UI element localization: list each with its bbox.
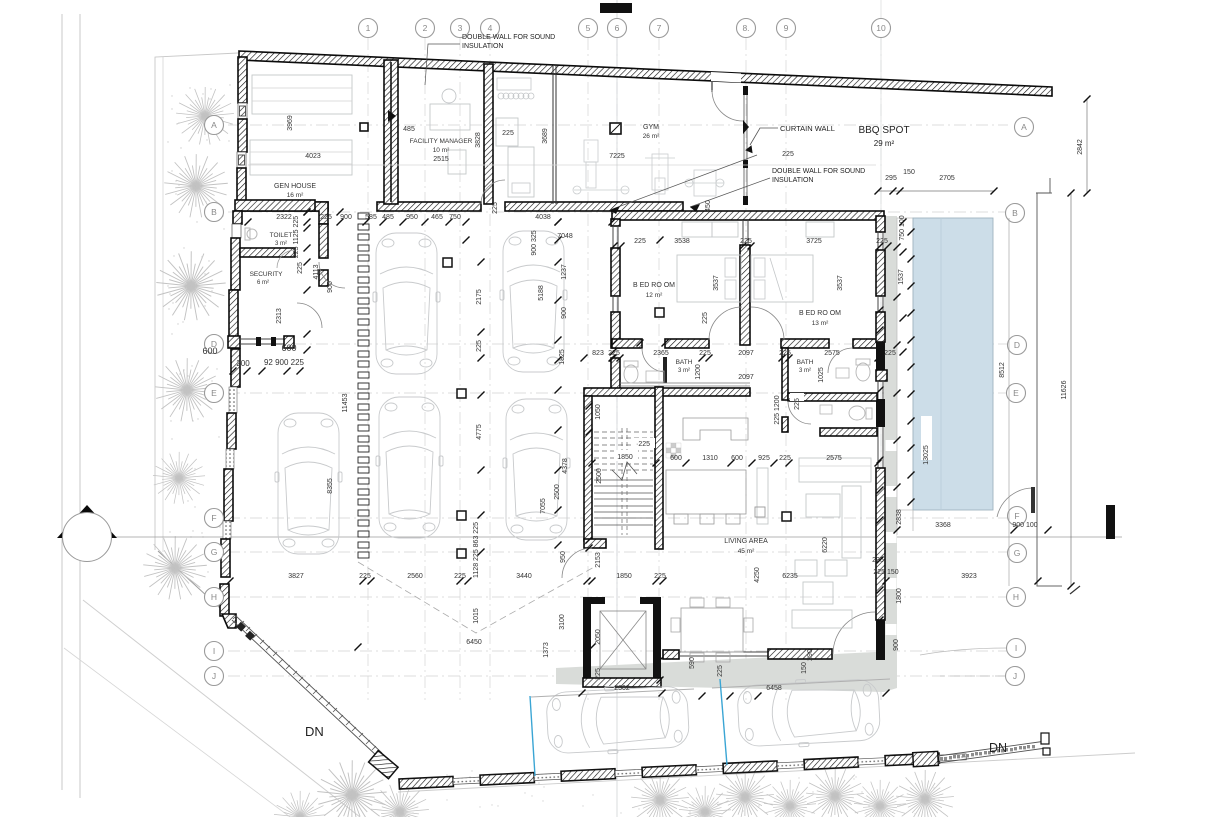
svg-text:3 m²: 3 m²: [275, 241, 287, 247]
svg-text:F: F: [1014, 511, 1019, 521]
svg-text:7225: 7225: [609, 153, 625, 160]
svg-text:3537: 3537: [837, 275, 844, 291]
svg-text:900: 900: [561, 307, 568, 319]
svg-text:92 900 225: 92 900 225: [264, 358, 305, 367]
svg-text:225: 225: [884, 350, 896, 357]
svg-text:225: 225: [320, 214, 332, 221]
svg-text:8355: 8355: [327, 478, 334, 494]
svg-text:D: D: [1014, 340, 1020, 350]
svg-text:3828: 3828: [475, 132, 482, 148]
svg-text:590: 590: [689, 657, 696, 669]
svg-text:4023: 4023: [305, 153, 321, 160]
svg-text:225: 225: [782, 151, 794, 158]
svg-text:TOILET: TOILET: [270, 232, 293, 239]
svg-text:7055: 7055: [540, 498, 547, 514]
svg-text:2175: 2175: [476, 289, 483, 305]
svg-text:11626: 11626: [1061, 380, 1068, 399]
svg-text:225: 225: [634, 238, 646, 245]
svg-text:4: 4: [488, 23, 493, 33]
svg-text:J: J: [212, 671, 216, 681]
svg-text:GEN HOUSE: GEN HOUSE: [274, 183, 316, 190]
svg-text:2500: 2500: [554, 484, 561, 500]
svg-text:SECURITY: SECURITY: [250, 271, 284, 278]
svg-text:900: 900: [893, 639, 900, 651]
svg-text:INSULATION: INSULATION: [462, 43, 504, 50]
svg-text:2313: 2313: [276, 308, 283, 324]
svg-text:3: 3: [458, 23, 463, 33]
svg-text:585: 585: [365, 214, 377, 221]
svg-text:7: 7: [657, 23, 662, 33]
svg-text:225 1200: 225 1200: [774, 395, 781, 424]
svg-text:1025: 1025: [818, 367, 825, 383]
svg-text:3538: 3538: [674, 238, 690, 245]
svg-text:J: J: [1013, 671, 1017, 681]
svg-text:3 m²: 3 m²: [678, 368, 690, 374]
svg-text:1310: 1310: [702, 455, 718, 462]
svg-text:2097: 2097: [738, 350, 754, 357]
svg-text:4250: 4250: [754, 567, 761, 583]
svg-text:3969: 3969: [287, 115, 294, 131]
svg-text:3725: 3725: [806, 238, 822, 245]
svg-text:6: 6: [615, 23, 620, 33]
svg-text:DN: DN: [989, 741, 1007, 755]
svg-text:B ED RO OM: B ED RO OM: [633, 282, 675, 289]
svg-text:·225: ·225: [636, 441, 650, 448]
svg-text:6220: 6220: [822, 537, 829, 553]
svg-text:2500: 2500: [596, 468, 603, 484]
svg-text:3440: 3440: [516, 573, 532, 580]
svg-text:2560: 2560: [407, 573, 423, 580]
svg-text:465: 465: [431, 214, 443, 221]
svg-text:13025: 13025: [923, 445, 930, 465]
svg-text:1015: 1015: [473, 608, 480, 624]
svg-text:A: A: [211, 120, 217, 130]
svg-text:E: E: [1013, 388, 1019, 398]
svg-text:B: B: [211, 207, 217, 217]
svg-text:4775: 4775: [476, 424, 483, 440]
svg-text:LIVING AREA: LIVING AREA: [724, 538, 768, 545]
svg-text:6235: 6235: [782, 573, 798, 580]
svg-text:1373: 1373: [543, 642, 550, 658]
svg-text:3827: 3827: [288, 573, 304, 580]
svg-text:225: 225: [779, 455, 791, 462]
svg-text:2: 2: [423, 23, 428, 33]
svg-text:600: 600: [670, 455, 682, 462]
svg-text:950: 950: [560, 551, 567, 563]
svg-text:B: B: [1012, 208, 1018, 218]
svg-text:150: 150: [801, 662, 808, 674]
svg-text:1200: 1200: [695, 364, 702, 380]
svg-text:750 100: 750 100: [899, 215, 906, 240]
svg-text:E: E: [211, 388, 217, 398]
svg-text:290: 290: [807, 649, 814, 661]
svg-text:1128 225 863 225: 1128 225 863 225: [473, 522, 480, 578]
svg-text:13 m²: 13 m²: [812, 320, 829, 327]
svg-text:29 m²: 29 m²: [874, 139, 895, 148]
svg-text:H: H: [211, 592, 217, 602]
svg-text:1: 1: [366, 23, 371, 33]
svg-text:10: 10: [876, 23, 886, 33]
svg-text:DOUBLE WALL FOR SOUND: DOUBLE WALL FOR SOUND: [772, 168, 865, 175]
svg-text:3689: 3689: [542, 128, 549, 144]
svg-text:10 m²: 10 m²: [433, 147, 450, 154]
svg-text:26 m²: 26 m²: [643, 133, 660, 140]
svg-text:1850: 1850: [617, 454, 633, 461]
svg-text:950: 950: [406, 214, 418, 221]
svg-text:1237: 1237: [561, 264, 568, 280]
svg-text:900: 900: [327, 281, 334, 293]
svg-text:16 m²: 16 m²: [287, 192, 304, 199]
svg-text:BATH: BATH: [797, 359, 814, 366]
svg-text:2575: 2575: [824, 350, 840, 357]
svg-text:225: 225: [794, 398, 801, 410]
svg-text:2365: 2365: [653, 350, 669, 357]
svg-text:2097: 2097: [738, 374, 754, 381]
svg-text:200: 200: [236, 359, 250, 368]
svg-text:150: 150: [903, 169, 915, 176]
svg-text:600: 600: [281, 343, 296, 353]
svg-text:225: 225: [779, 350, 791, 357]
svg-text:925: 925: [758, 455, 770, 462]
svg-text:295: 295: [885, 175, 897, 182]
svg-text:2575: 2575: [826, 455, 842, 462]
svg-text:225: 225: [476, 340, 483, 352]
svg-text:6450: 6450: [466, 639, 482, 646]
svg-text:9: 9: [784, 23, 789, 33]
svg-text:G: G: [211, 547, 218, 557]
svg-text:2838: 2838: [896, 509, 903, 525]
svg-text:2153: 2153: [595, 552, 602, 568]
svg-text:2842: 2842: [1077, 139, 1084, 155]
svg-text:I: I: [213, 646, 215, 656]
svg-text:225: 225: [717, 665, 724, 677]
svg-text:6 m²: 6 m²: [257, 280, 269, 286]
svg-text:B ED RO OM: B ED RO OM: [799, 310, 841, 317]
svg-text:DN: DN: [305, 724, 324, 739]
svg-text:F: F: [211, 513, 216, 523]
svg-text:6458: 6458: [766, 685, 782, 692]
svg-text:3100: 3100: [559, 614, 566, 630]
svg-text:4113: 4113: [313, 264, 320, 279]
svg-text:G: G: [1014, 548, 1021, 558]
svg-text:BATH: BATH: [676, 359, 693, 366]
svg-text:4038: 4038: [535, 214, 551, 221]
svg-text:CURTAIN WALL: CURTAIN WALL: [780, 124, 835, 133]
svg-text:INSULATION: INSULATION: [772, 177, 814, 184]
svg-text:600: 600: [202, 346, 217, 356]
svg-text:2705: 2705: [939, 175, 955, 182]
svg-text:485: 485: [403, 126, 415, 133]
svg-text:8.: 8.: [742, 23, 749, 33]
svg-text:225: 225: [595, 668, 602, 680]
svg-text:FACILITY MANAGER: FACILITY MANAGER: [410, 138, 473, 145]
svg-text:225: 225: [297, 262, 304, 274]
svg-text:225: 225: [702, 312, 709, 324]
svg-text:1850: 1850: [616, 573, 632, 580]
svg-text:450: 450: [705, 200, 712, 212]
svg-text:1537: 1537: [898, 269, 905, 285]
svg-text:1050: 1050: [595, 404, 602, 420]
svg-text:2322: 2322: [276, 214, 292, 221]
svg-text:3923: 3923: [961, 573, 977, 580]
svg-text:900 325: 900 325: [531, 230, 538, 255]
svg-text:225: 225: [492, 202, 499, 214]
svg-text:1825: 1825: [559, 349, 566, 365]
svg-text:12 m²: 12 m²: [646, 292, 663, 299]
svg-text:8512: 8512: [999, 362, 1006, 378]
svg-text:225 150: 225 150: [873, 569, 898, 576]
svg-text:I: I: [1015, 643, 1017, 653]
svg-text:485: 485: [382, 214, 394, 221]
svg-text:3537: 3537: [713, 275, 720, 291]
svg-text:823: 823: [592, 350, 604, 357]
svg-text:2050: 2050: [595, 629, 602, 645]
svg-text:GYM: GYM: [643, 124, 659, 131]
svg-text:225: 225: [502, 130, 514, 137]
svg-text:11453: 11453: [342, 393, 349, 412]
svg-text:225: 225: [699, 350, 711, 357]
svg-text:225: 225: [740, 238, 752, 245]
svg-text:H: H: [1013, 592, 1019, 602]
svg-text:A: A: [1021, 122, 1027, 132]
svg-text:5188: 5188: [538, 285, 545, 301]
svg-text:45 m²: 45 m²: [738, 548, 755, 555]
svg-text:5: 5: [586, 23, 591, 33]
svg-text:2515: 2515: [433, 156, 449, 163]
svg-text:3 m²: 3 m²: [799, 368, 811, 374]
svg-text:225: 225: [454, 573, 466, 580]
svg-text:4378: 4378: [562, 458, 569, 474]
svg-text:DOUBLE WALL FOR SOUND: DOUBLE WALL FOR SOUND: [462, 34, 555, 41]
svg-text:225 1125 225: 225 1125 225: [293, 216, 300, 258]
svg-text:1800: 1800: [896, 588, 903, 604]
svg-text:2302: 2302: [614, 685, 630, 692]
svg-text:3368: 3368: [935, 522, 951, 529]
svg-text:BBQ SPOT: BBQ SPOT: [858, 125, 909, 136]
